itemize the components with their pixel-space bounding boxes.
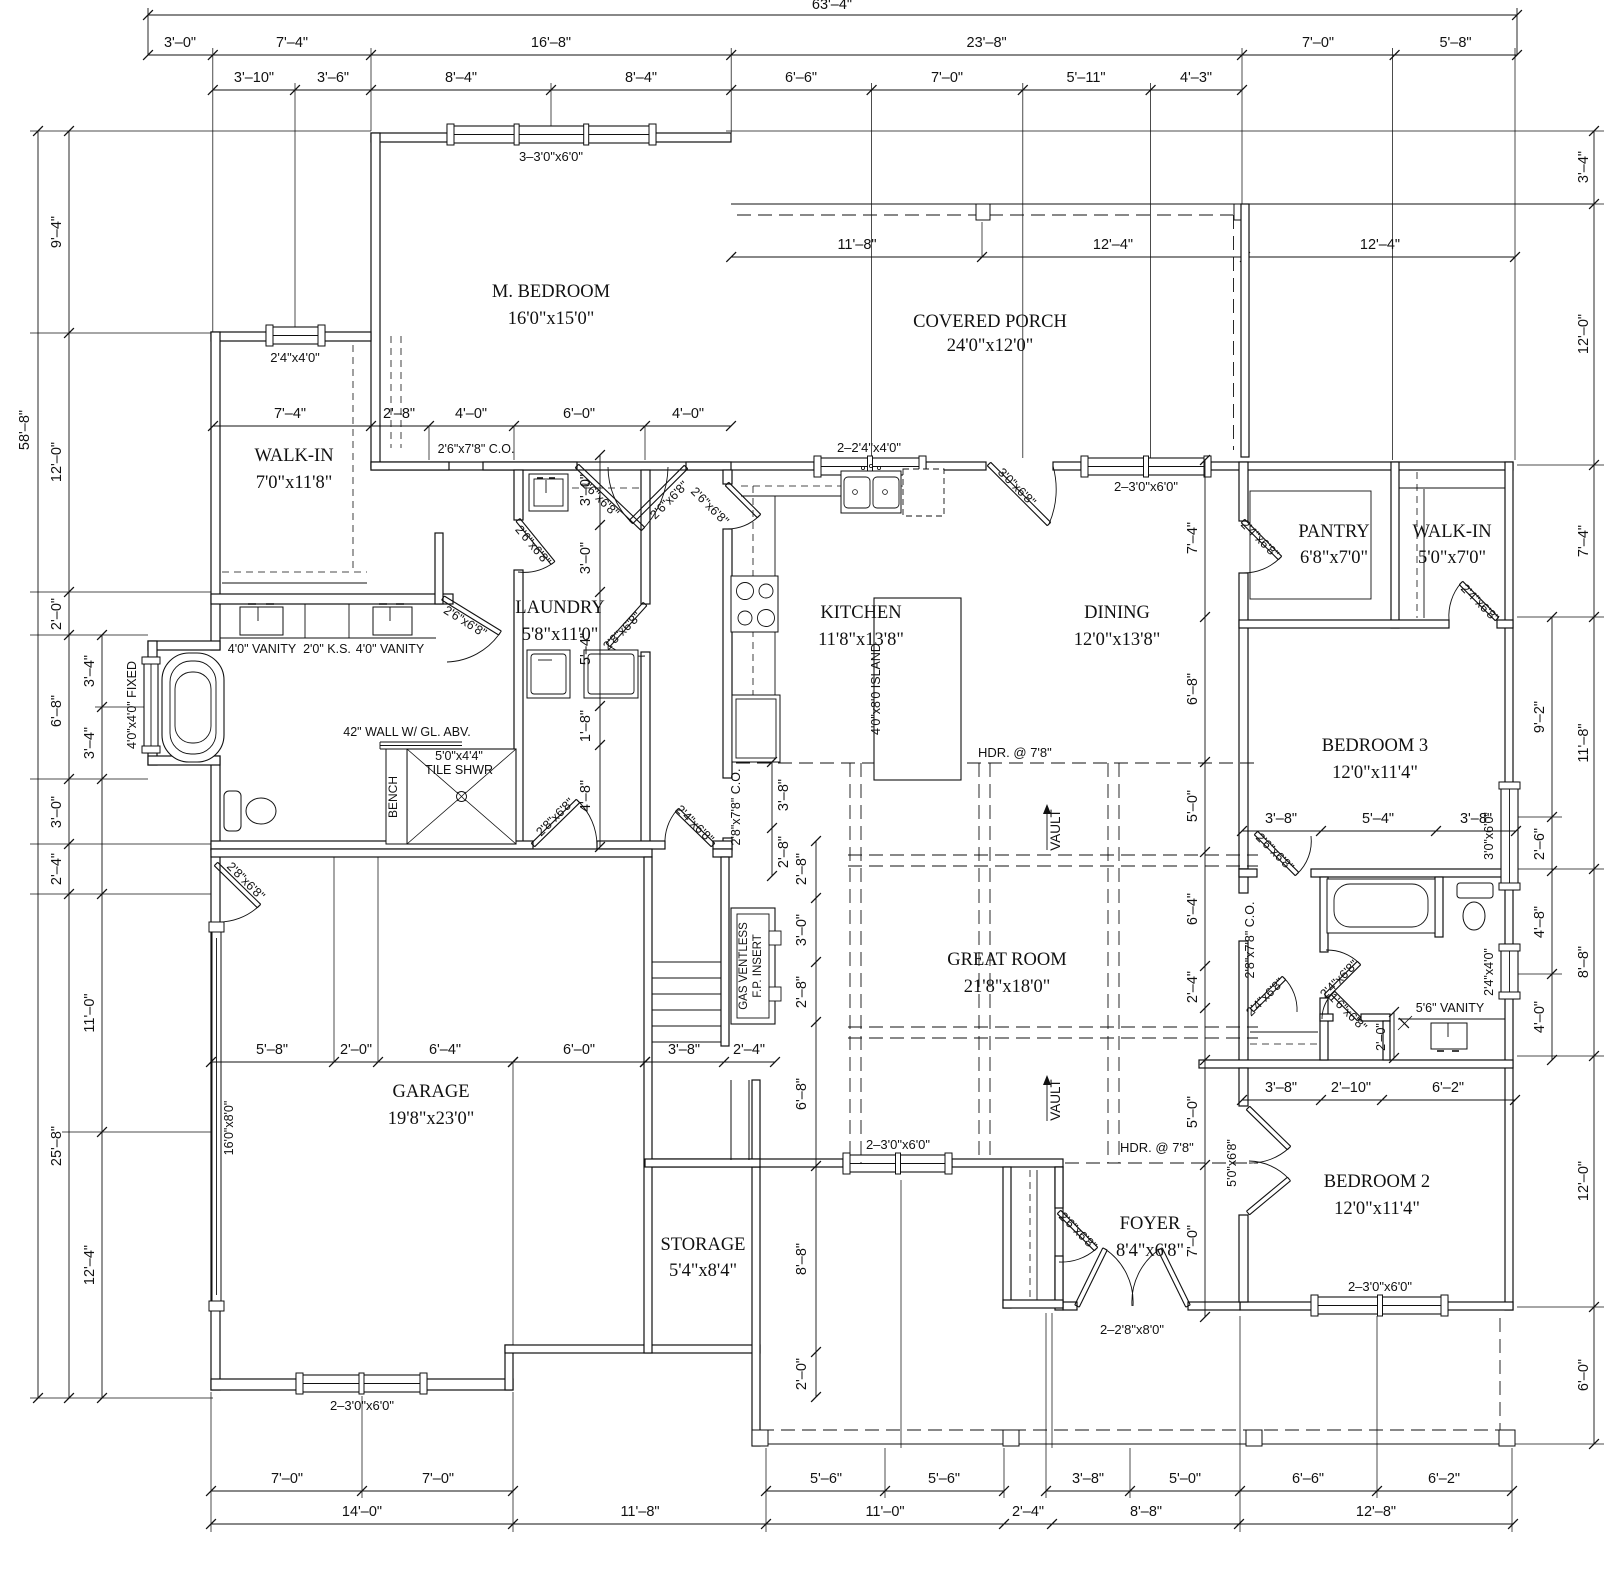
svg-text:5'4"x8'4": 5'4"x8'4" [669,1261,737,1281]
svg-text:4'–8": 4'–8" [578,780,594,812]
svg-text:12'–0": 12'–0" [1576,314,1592,354]
svg-text:4'0"x8'0 ISLAND: 4'0"x8'0 ISLAND [869,643,883,735]
svg-text:6'–0": 6'–0" [1576,1359,1592,1391]
svg-text:7'–0": 7'–0" [422,1471,454,1487]
svg-text:2–2'4"x4'0": 2–2'4"x4'0" [837,440,901,455]
svg-text:2'–4": 2'–4" [733,1042,765,1058]
svg-text:COVERED PORCH: COVERED PORCH [913,312,1067,332]
svg-text:HDR. @ 7'8": HDR. @ 7'8" [978,745,1052,760]
svg-text:5'–6": 5'–6" [810,1471,842,1487]
svg-text:5'–8": 5'–8" [256,1042,288,1058]
svg-text:2'4"x4'0": 2'4"x4'0" [270,350,320,365]
svg-text:2'–6": 2'–6" [1532,828,1548,860]
svg-text:PANTRY: PANTRY [1298,522,1369,542]
svg-text:7'–4": 7'–4" [274,406,306,422]
svg-text:3'–8": 3'–8" [668,1042,700,1058]
svg-text:7'–4": 7'–4" [276,35,308,51]
svg-text:KITCHEN: KITCHEN [820,603,901,623]
svg-text:7'–0": 7'–0" [1185,1225,1201,1257]
svg-text:VAULT: VAULT [1048,809,1063,851]
svg-text:3'–4": 3'–4" [82,727,98,759]
svg-text:5'–4": 5'–4" [578,633,594,665]
svg-text:5'–0": 5'–0" [1185,1096,1201,1128]
svg-text:3'–0": 3'–0" [578,474,594,506]
svg-text:3'–8": 3'–8" [1265,1080,1297,1096]
svg-text:11'8"x13'8": 11'8"x13'8" [818,630,904,650]
svg-text:LAUNDRY: LAUNDRY [515,598,604,618]
svg-text:4'–3": 4'–3" [1180,70,1212,86]
svg-text:2'–4": 2'–4" [49,853,65,885]
svg-text:STORAGE: STORAGE [661,1235,746,1255]
svg-text:8'–8": 8'–8" [794,1243,810,1275]
svg-text:2'–0": 2'–0" [1374,1023,1388,1051]
svg-text:4'–0": 4'–0" [455,406,487,422]
svg-text:3'–8": 3'–8" [1265,811,1297,827]
svg-text:4'–0": 4'–0" [672,406,704,422]
svg-text:12'–0": 12'–0" [1576,1161,1592,1201]
svg-text:11'–0": 11'–0" [82,993,98,1032]
svg-text:7'–0": 7'–0" [931,70,963,86]
svg-text:24'0"x12'0": 24'0"x12'0" [947,336,1034,356]
svg-text:2'–0": 2'–0" [49,598,65,630]
svg-text:2'–0": 2'–0" [794,1358,810,1390]
svg-text:8'–8": 8'–8" [1576,946,1592,978]
svg-text:2'4"x4'0": 2'4"x4'0" [1482,948,1496,996]
svg-text:GREAT ROOM: GREAT ROOM [947,950,1066,970]
svg-text:3'–0": 3'–0" [578,542,594,574]
svg-text:12'–4": 12'–4" [1360,237,1400,253]
svg-text:3'–8": 3'–8" [1072,1471,1104,1487]
svg-text:M. BEDROOM: M. BEDROOM [492,282,610,302]
svg-text:5'–4": 5'–4" [1362,811,1394,827]
svg-text:GARAGE: GARAGE [392,1082,469,1102]
svg-text:TILE SHWR: TILE SHWR [425,763,493,777]
svg-text:6'–4": 6'–4" [429,1042,461,1058]
svg-text:42" WALL W/ GL. ABV.: 42" WALL W/ GL. ABV. [343,725,470,739]
svg-text:63'–4": 63'–4" [812,0,852,13]
svg-text:3'–0": 3'–0" [164,35,196,51]
svg-text:2'–8": 2'–8" [794,976,810,1008]
svg-text:4'0" VANITY: 4'0" VANITY [356,642,425,656]
svg-text:BENCH: BENCH [386,776,400,818]
svg-text:6'–4": 6'–4" [1185,893,1201,925]
svg-text:16'0"x15'0": 16'0"x15'0" [508,309,595,329]
svg-text:6'–6": 6'–6" [785,70,817,86]
svg-text:8'4"x6'8": 8'4"x6'8" [1116,1241,1184,1261]
svg-text:2–2'8"x8'0": 2–2'8"x8'0" [1100,1322,1164,1337]
svg-text:7'–4": 7'–4" [1576,525,1592,557]
svg-text:3'–4": 3'–4" [1576,151,1592,183]
svg-text:12'–4": 12'–4" [82,1245,98,1285]
svg-text:9'–2": 9'–2" [1532,701,1548,733]
svg-text:WALK-IN: WALK-IN [254,446,333,466]
svg-text:6'–2": 6'–2" [1428,1471,1460,1487]
svg-text:2'6"x7'8" C.O.: 2'6"x7'8" C.O. [438,442,515,456]
svg-text:4'0" VANITY: 4'0" VANITY [228,642,297,656]
svg-text:BEDROOM 3: BEDROOM 3 [1322,736,1428,756]
svg-text:GAS VENTLESS: GAS VENTLESS [738,922,750,1010]
svg-text:5'0"x7'0": 5'0"x7'0" [1418,548,1486,568]
svg-text:FOYER: FOYER [1120,1214,1181,1234]
svg-text:2'–4": 2'–4" [1012,1504,1044,1520]
svg-text:8'–4": 8'–4" [445,70,477,86]
svg-text:3'–10": 3'–10" [234,70,274,86]
svg-text:2–3'0"x6'0": 2–3'0"x6'0" [866,1137,930,1152]
svg-text:3–3'0"x6'0": 3–3'0"x6'0" [519,149,583,164]
svg-text:14'–0": 14'–0" [342,1504,382,1520]
svg-text:3'–0": 3'–0" [794,914,810,946]
svg-text:2–3'0"x6'0": 2–3'0"x6'0" [330,1398,394,1413]
svg-text:12'0"x11'4": 12'0"x11'4" [1332,763,1418,783]
svg-text:58'–8": 58'–8" [17,410,33,450]
svg-text:5'0"x4'4": 5'0"x4'4" [435,749,483,763]
svg-text:8'–4": 8'–4" [625,70,657,86]
svg-text:2'–8": 2'–8" [383,406,415,422]
svg-text:6'8"x7'0": 6'8"x7'0" [1300,548,1368,568]
svg-text:9'–4": 9'–4" [49,216,65,248]
svg-text:7'–0": 7'–0" [271,1471,303,1487]
svg-text:3'–0": 3'–0" [49,796,65,828]
svg-text:3'–8": 3'–8" [1460,811,1492,827]
svg-text:VAULT: VAULT [1048,1079,1063,1121]
svg-text:11'–8": 11'–8" [1576,723,1592,762]
svg-text:6'–2": 6'–2" [1432,1080,1464,1096]
svg-text:5'–0": 5'–0" [1169,1471,1201,1487]
svg-text:6'–8": 6'–8" [49,695,65,727]
svg-text:7'–4": 7'–4" [1185,522,1201,554]
svg-text:11'–0": 11'–0" [865,1504,904,1520]
svg-text:1'–8": 1'–8" [578,710,594,742]
svg-text:19'8"x23'0": 19'8"x23'0" [388,1109,475,1129]
svg-text:HDR. @ 7'8": HDR. @ 7'8" [1120,1140,1194,1155]
svg-text:2'–8": 2'–8" [794,853,810,885]
svg-text:2'–10": 2'–10" [1331,1080,1371,1096]
svg-text:3'–6": 3'–6" [317,70,349,86]
svg-text:4'–0": 4'–0" [1532,1001,1548,1033]
svg-text:6'–0": 6'–0" [563,1042,595,1058]
svg-text:2'–0": 2'–0" [340,1042,372,1058]
svg-text:7'0"x11'8": 7'0"x11'8" [256,473,333,493]
svg-text:11'–8": 11'–8" [837,237,876,253]
svg-text:2'8"x7'8" C.O.: 2'8"x7'8" C.O. [1243,902,1257,979]
svg-text:12'–8": 12'–8" [1356,1504,1396,1520]
svg-text:BEDROOM 2: BEDROOM 2 [1324,1172,1430,1192]
svg-text:5'–8": 5'–8" [1439,35,1471,51]
svg-text:16'0"x8'0": 16'0"x8'0" [222,1101,236,1156]
svg-text:5'–11": 5'–11" [1066,70,1105,86]
svg-text:4'0"x4'0" FIXED: 4'0"x4'0" FIXED [125,661,139,749]
svg-text:21'8"x18'0": 21'8"x18'0" [964,977,1051,997]
svg-text:5'–0": 5'–0" [1185,790,1201,822]
svg-text:6'–6": 6'–6" [1292,1471,1324,1487]
svg-text:2'8"x7'8" C.O.: 2'8"x7'8" C.O. [729,769,743,846]
svg-text:12'–4": 12'–4" [1093,237,1133,253]
svg-text:7'–0": 7'–0" [1302,35,1334,51]
svg-text:3'–8": 3'–8" [776,779,792,811]
svg-text:F.P. INSERT: F.P. INSERT [752,934,764,998]
svg-text:DINING: DINING [1084,603,1150,623]
svg-text:2'–4": 2'–4" [1185,971,1201,1003]
svg-text:12'–0": 12'–0" [49,442,65,482]
svg-text:12'0"x11'4": 12'0"x11'4" [1334,1199,1420,1219]
svg-text:3'–4": 3'–4" [82,655,98,687]
svg-text:6'–8": 6'–8" [794,1078,810,1110]
svg-text:2'–8": 2'–8" [776,836,792,868]
svg-text:8'–8": 8'–8" [1130,1504,1162,1520]
svg-text:11'–8": 11'–8" [620,1504,659,1520]
svg-text:5'–6": 5'–6" [928,1471,960,1487]
svg-text:6'–0": 6'–0" [563,406,595,422]
svg-text:4'–8": 4'–8" [1532,906,1548,938]
svg-text:2–3'0"x6'0": 2–3'0"x6'0" [1348,1279,1412,1294]
svg-text:5'6" VANITY: 5'6" VANITY [1416,1001,1485,1015]
svg-text:2–3'0"x6'0": 2–3'0"x6'0" [1114,479,1178,494]
svg-text:6'–8": 6'–8" [1185,673,1201,705]
svg-text:12'0"x13'8": 12'0"x13'8" [1074,630,1161,650]
svg-text:16'–8": 16'–8" [531,35,571,51]
svg-text:23'–8": 23'–8" [967,35,1007,51]
svg-text:2'0" K.S.: 2'0" K.S. [303,642,351,656]
